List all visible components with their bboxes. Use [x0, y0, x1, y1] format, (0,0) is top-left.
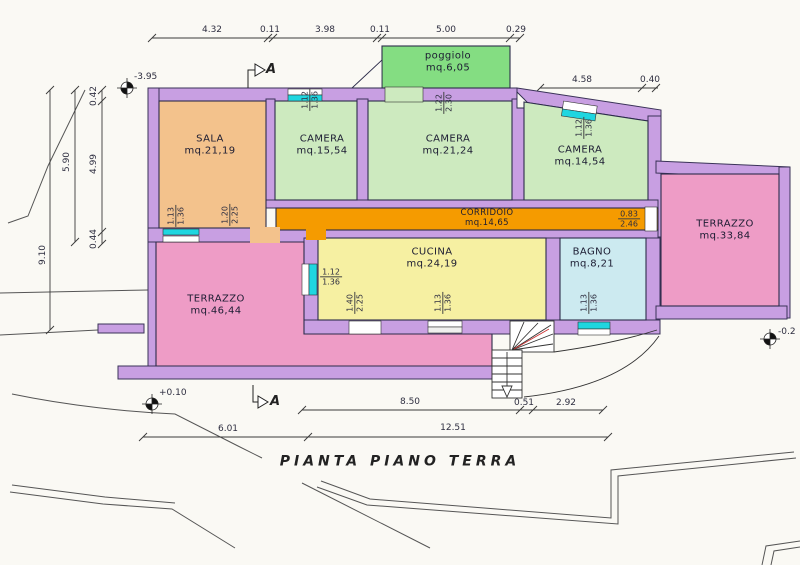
room-label-camera2: CAMERA mq.21,24 [422, 134, 473, 157]
dim-left-590: 5.90 [63, 152, 73, 172]
opening-dim-camera3-window: 1.12 1.36 [574, 117, 593, 139]
level-right: -0.2 [778, 328, 796, 338]
section-label-top: A [266, 63, 276, 77]
opening-dim-camera1-window: 1.12 1.36 [300, 89, 319, 111]
dim-bottom-850: 8.50 [400, 398, 420, 408]
dim-top-right-1: 4.58 [572, 76, 592, 86]
benchmark-right [760, 329, 780, 349]
dim-top-4: 0.11 [370, 26, 390, 36]
room-label-poggiolo: poggiolo mq.6,05 [425, 51, 471, 74]
dim-left-910: 9.10 [39, 245, 49, 265]
level-top-left: -3.95 [134, 73, 157, 83]
drawing-title: PIANTA PIANO TERRA [280, 454, 521, 469]
dim-top-6: 0.29 [506, 26, 526, 36]
opening-dim-sala-door: 1.20 2.25 [220, 204, 239, 226]
dim-top-3: 3.98 [315, 26, 335, 36]
room-label-terrazzo-est: TERRAZZO mq.33,84 [696, 219, 754, 242]
bagno-window [578, 322, 610, 329]
dim-bottom-1251: 12.51 [440, 424, 466, 434]
dim-left-044: 0.44 [90, 229, 100, 249]
dim-bottom-051: 0.51 [514, 399, 534, 409]
opening-dim-corridoio-end: 0.83 2.46 [618, 209, 640, 228]
dim-bottom-292: 2.92 [556, 399, 576, 409]
opening-dim-cucina-window-bottom: 1.13 1.36 [433, 292, 452, 314]
room-label-cucina: CUCINA mq.24,19 [406, 247, 457, 270]
camera2-poggiolo-door [385, 87, 423, 102]
room-label-camera1: CAMERA mq.15,54 [296, 134, 347, 157]
section-label-bottom: A [270, 395, 280, 409]
cucina-door [349, 321, 381, 334]
section-arrow-top [255, 64, 265, 76]
room-label-camera3: CAMERA mq.14,54 [554, 145, 605, 168]
roof-wedge [352, 60, 382, 88]
opening-dim-cucina-door: 1.40 2.25 [345, 292, 364, 314]
sala-window [163, 229, 199, 235]
cucina-window-left [309, 264, 317, 295]
opening-dim-cucina-window-left: 1.12 1.36 [320, 267, 342, 286]
dim-top-1: 4.32 [202, 26, 222, 36]
floor-plan-drawing [0, 0, 800, 565]
dim-top-5: 5.00 [436, 26, 456, 36]
section-arrow-bottom [258, 396, 268, 408]
opening-dim-camera2-door: 1.22 2.30 [434, 92, 453, 114]
opening-dim-bagno-window: 1.13 1.36 [579, 292, 598, 314]
corridoio-end-door [645, 207, 657, 231]
room-label-sala: SALA mq.21,19 [184, 134, 235, 157]
dim-top-right-2: 0.40 [640, 76, 660, 86]
dim-top-2: 0.11 [260, 26, 280, 36]
room-label-terrazzo-ovest: TERRAZZO mq.46,44 [187, 294, 245, 317]
floor-plan-sheet: 4.32 0.11 3.98 0.11 5.00 0.29 4.58 0.40 … [0, 0, 800, 565]
sala-door [250, 227, 280, 243]
dim-bottom-601: 6.01 [218, 425, 238, 435]
corridoio-cucina-passage [306, 229, 326, 240]
level-bottom-left: +0.10 [159, 389, 187, 399]
cucina-window-bottom [428, 327, 462, 333]
opening-dim-sala-window: 1.13 1.36 [166, 205, 185, 227]
dim-left-499: 4.99 [90, 154, 100, 174]
room-label-corridoio: CORRIDOIO mq.14,65 [461, 209, 514, 229]
dim-left-042: 0.42 [90, 86, 100, 106]
room-label-bagno: BAGNO mq.8,21 [570, 247, 614, 270]
